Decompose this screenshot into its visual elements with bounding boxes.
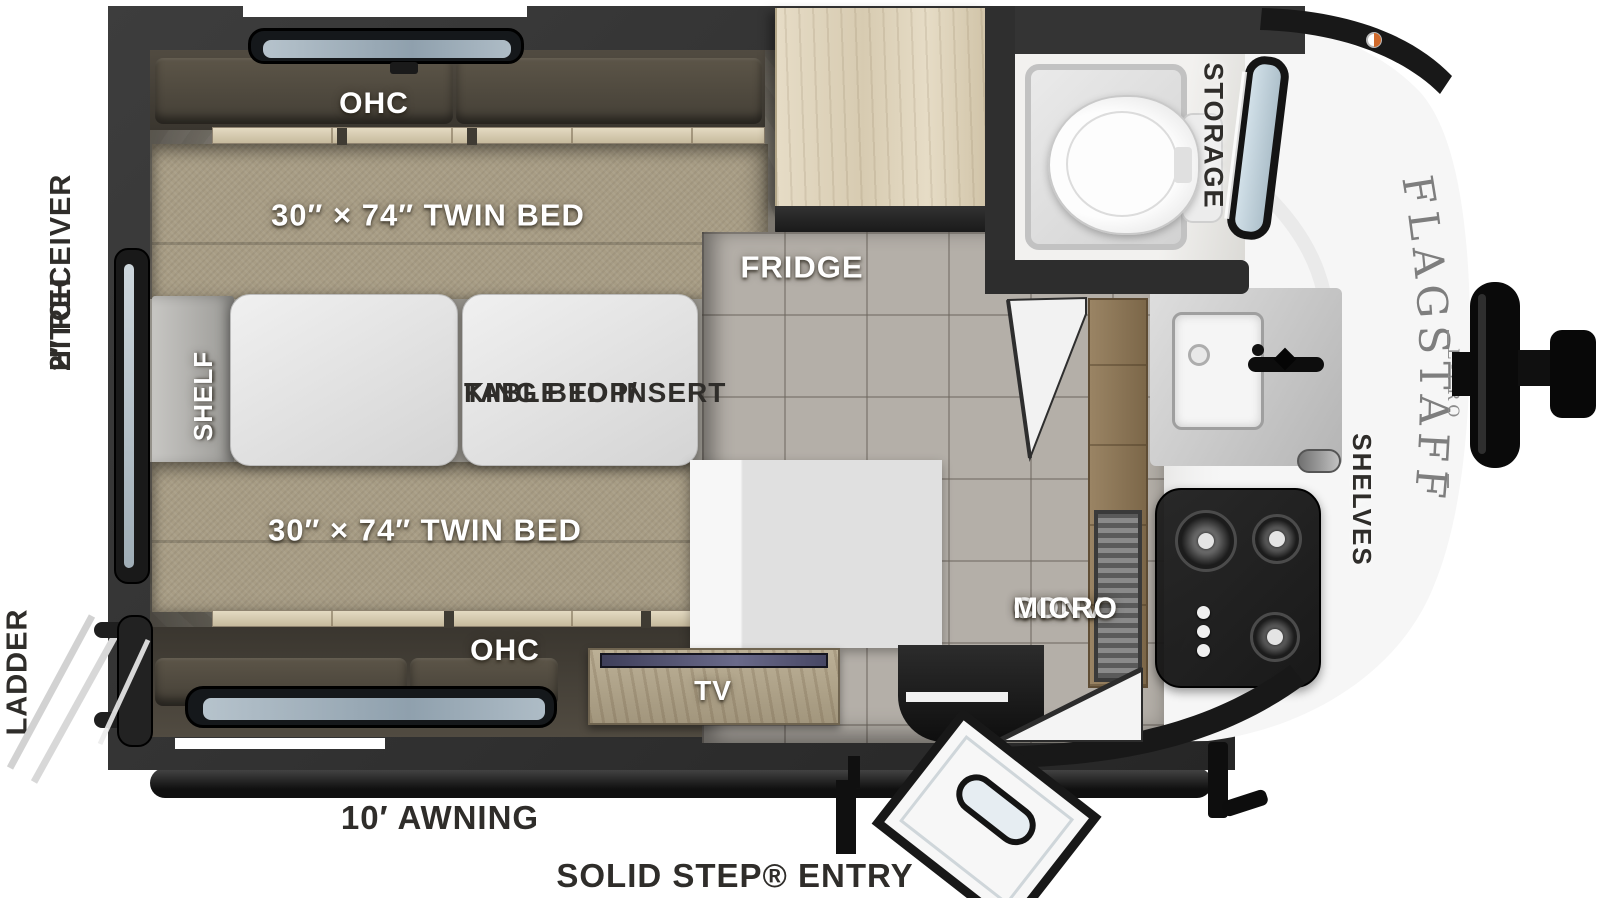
storage-label: STORAGE	[1198, 62, 1227, 209]
shelf-label: SHELF	[189, 351, 217, 441]
bathroom-left-wall	[985, 6, 1015, 292]
table-label-line2: KING BED INSERT	[464, 373, 726, 414]
twin-bed-top-label: 30″ × 74″ TWIN BED	[271, 198, 585, 231]
burner-small	[1250, 612, 1300, 662]
ohc-top-label: OHC	[339, 88, 409, 120]
toilet-hinge	[1174, 147, 1192, 183]
tv-screen	[600, 653, 828, 668]
ladder-label: LADDER	[2, 609, 33, 736]
burner-large	[1175, 510, 1237, 572]
toilet-lid	[1066, 111, 1178, 217]
floorplan-diagram: 2″ RECEIVER HITCH LADDER 10′ AWNING SOLI…	[0, 0, 1600, 898]
kitchen-sink	[1172, 312, 1264, 430]
tv-label: TV	[694, 676, 732, 706]
burner-cap	[1267, 629, 1283, 645]
burner-small	[1252, 514, 1302, 564]
receiver-hitch-line2: HITCH	[46, 277, 77, 371]
bathroom-bottom-wall	[985, 260, 1249, 294]
storage-bench	[690, 460, 942, 648]
cooktop-knob	[1197, 625, 1210, 638]
conv-micro-line2: MICRO	[1013, 590, 1118, 628]
burner-cap	[1198, 533, 1214, 549]
cooktop	[1155, 488, 1321, 688]
cooktop-knob	[1197, 606, 1210, 619]
solid-step-entry-label: SOLID STEP® ENTRY	[556, 858, 913, 894]
twin-bed-bottom-label: 30″ × 74″ TWIN BED	[268, 513, 582, 546]
fridge-label: FRIDGE	[740, 250, 863, 283]
cooktop-knob	[1197, 644, 1210, 657]
shelves-label: SHELVES	[1348, 433, 1376, 566]
burner-cap	[1269, 531, 1285, 547]
faucet-handle	[1252, 344, 1264, 356]
entry-threshold	[906, 692, 1008, 702]
bathroom-top-wall	[985, 6, 1305, 54]
sink-drain	[1188, 344, 1210, 366]
ohc-bottom-label: OHC	[470, 635, 540, 667]
awning-label: 10′ AWNING	[341, 800, 539, 836]
